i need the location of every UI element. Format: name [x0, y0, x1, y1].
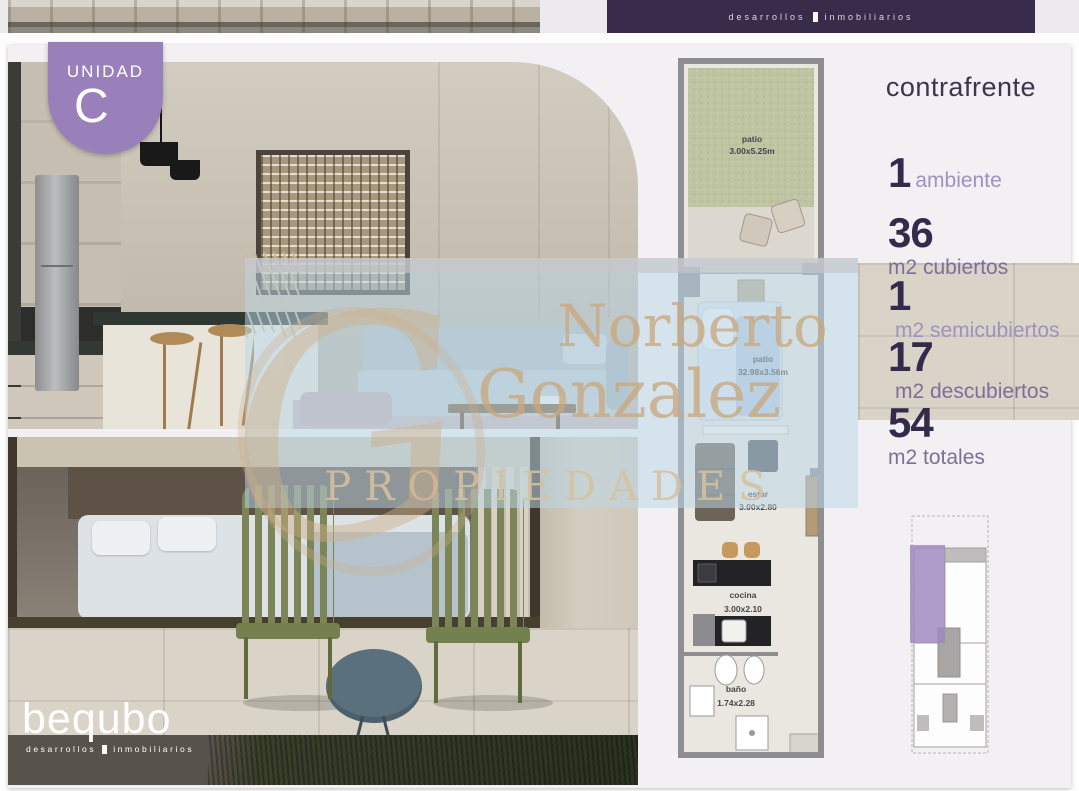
plan-room-dims: 3.00x5.25m	[729, 146, 775, 156]
unit-heading: PB contrafrente	[858, 72, 1036, 103]
plan-sink	[722, 620, 746, 642]
building-key-plan	[905, 514, 995, 756]
plan-stool	[722, 542, 738, 558]
tagline-word: desarrollos	[728, 12, 805, 22]
plan-bidet	[744, 656, 764, 684]
chair-leg	[244, 637, 248, 699]
brand-name: bequbo	[22, 698, 194, 741]
keyplan-room-block	[970, 715, 984, 731]
plan-shower-drain	[749, 730, 755, 736]
plan-room-name: baño	[726, 684, 746, 694]
tagline-word: inmobiliarios	[113, 744, 194, 754]
previous-page-photo	[8, 0, 540, 33]
patio-side-table	[326, 649, 422, 723]
stat-m2-descubiertos: 17 m2 descubiertos	[888, 336, 1049, 404]
plan-lounge-chair	[739, 213, 773, 247]
orientation-label: contrafrente	[858, 72, 1036, 103]
watermark-name-line2: Gonzalez	[477, 356, 781, 433]
stat-value: 1	[888, 152, 910, 194]
keyplan-top-room	[945, 548, 986, 562]
keyplan-room-block	[917, 715, 929, 731]
tagline-separator-block	[813, 12, 818, 22]
chair-seat	[236, 623, 340, 639]
keyplan-stair-core	[943, 694, 957, 722]
plan-kitchen-cabinet	[693, 614, 715, 646]
plan-washbasin	[690, 686, 714, 716]
stat-value: 54	[888, 402, 985, 444]
tagline-word: inmobiliarios	[825, 12, 914, 22]
pendant-lamp-shade	[170, 160, 200, 180]
keyplan-unit-highlight	[910, 545, 945, 643]
unit-badge-letter: C	[48, 83, 163, 131]
stat-value: 1	[888, 275, 1060, 317]
plan-stool	[744, 542, 760, 558]
plan-cooktop	[698, 564, 716, 582]
brand-logo: bequbo desarrollos inmobiliarios	[22, 698, 194, 754]
bar-stool	[150, 332, 194, 345]
unit-badge-label: UNIDAD	[48, 62, 163, 82]
pillow	[92, 521, 150, 555]
plan-room-name: cocina	[730, 590, 757, 600]
tagline-word: desarrollos	[26, 744, 96, 754]
stat-m2-totales: 54 m2 totales	[888, 402, 985, 470]
plan-room-name: patio	[742, 134, 762, 144]
stat-m2-cubiertos: 36 m2 cubiertos	[888, 212, 1008, 280]
stat-ambientes: 1 ambiente	[888, 152, 1002, 194]
grass-texture	[208, 735, 638, 785]
brand-tagline: desarrollos inmobiliarios	[22, 744, 194, 754]
stool-leg	[163, 342, 166, 429]
glass-door-frame	[8, 437, 17, 627]
stat-value: 17	[888, 336, 1049, 378]
chair-leg	[434, 641, 438, 703]
plan-toilet	[715, 655, 737, 685]
brand-tagline: desarrollos inmobiliarios	[728, 12, 913, 22]
brochure-page: desarrollos inmobiliarios	[0, 0, 1079, 791]
chair-seat	[426, 627, 530, 643]
previous-page-strip: desarrollos inmobiliarios	[0, 0, 1079, 33]
stat-label: m2 totales	[888, 446, 985, 470]
watermark-name-line1: Norberto	[557, 292, 828, 360]
unit-badge: UNIDAD C	[48, 42, 163, 154]
stat-value: 36	[888, 212, 1008, 254]
tagline-separator-block	[102, 745, 107, 754]
pillow	[158, 517, 216, 551]
chair-leg	[518, 641, 522, 703]
fridge	[35, 175, 79, 391]
stat-label: ambiente	[915, 169, 1001, 193]
chair-leg	[328, 637, 332, 699]
plan-room-dims: 3.00x2.10	[724, 604, 762, 614]
previous-page-brand-panel: desarrollos inmobiliarios	[607, 0, 1035, 33]
plan-room-dims: 1.74x2.28	[717, 698, 755, 708]
